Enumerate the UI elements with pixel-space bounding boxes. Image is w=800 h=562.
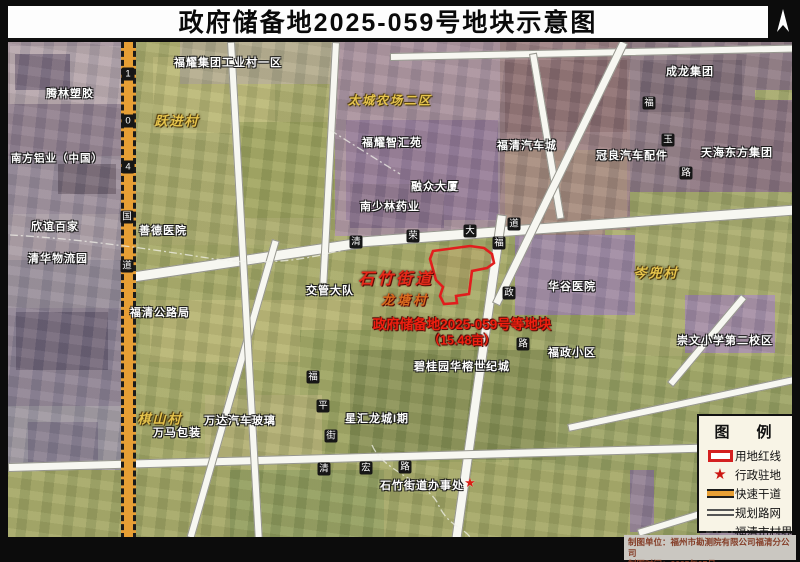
legend-swatch-red-line-icon [705,450,735,462]
legend-label: 行政驻地 [735,467,781,483]
place-label: 崇文小学第二校区 [677,332,773,348]
map-sheet: 政府储备地2025-059号地块示意图 [0,0,800,562]
road-chip: 政 [503,287,516,300]
road-chip: 玉 [662,134,675,147]
road-chip: 4 [122,161,135,174]
road-chip: 道 [121,260,134,273]
legend-swatch-expressway-icon [705,489,735,498]
place-label: 福清汽车城 [497,137,557,153]
road-chip: 路 [399,461,412,474]
road-chip: 0 [122,115,135,128]
road-chip: 福 [643,97,656,110]
place-label: 善德医院 [139,222,187,238]
legend-row: 规划路网 [705,503,792,522]
road-chip: 福 [307,371,320,384]
legend-swatch-planned-road-icon [705,509,735,516]
page-title: 政府储备地2025-059号地块示意图 [8,6,768,40]
road-chip: 福 [493,237,506,250]
place-label: 融众大厦 [411,178,459,194]
place-label: 欣谊百家 [31,218,79,234]
legend-row: 用地红线 [705,446,792,465]
legend-swatch-boundary-icon [705,531,735,533]
place-label: 碧桂园华榕世纪城 [414,358,510,374]
road-chip: 1 [122,68,135,81]
village-label: 棋山村 [137,409,182,428]
place-label: 华谷医院 [548,278,596,294]
north-arrow-icon [772,6,794,38]
legend-box: 图 例 用地红线 ★ 行政驻地 快速干道 规划路网 福清市村界 [697,414,792,533]
legend-row: ★ 行政驻地 [705,465,792,484]
place-label: 万达汽车玻璃 [204,412,276,428]
admin-star-icon: ★ [464,475,476,491]
place-label: 清华物流园 [28,250,88,266]
village-label: 跃进村 [154,111,199,130]
place-label: 福政小区 [548,344,596,360]
legend-swatch-star-icon: ★ [705,468,735,482]
place-label: 冠良汽车配件 [596,147,668,163]
road-chip: 路 [680,167,693,180]
place-label: 腾林塑胶 [46,85,94,101]
road-chip: 清 [350,236,363,249]
title-bar: 政府储备地2025-059号地块示意图 [8,6,768,40]
attribution-line1: 制图单位：福州市勘测院有限公司福清分公司 [628,537,796,559]
place-label: 南方铝业（中国） [11,151,103,166]
road-chip: 街 [325,430,338,443]
road-chip: 荣 [407,230,420,243]
village-label: 岑兜村 [633,263,678,282]
road-chip: 国 [121,211,134,224]
road-chip: 大 [464,225,477,238]
attribution-box: 制图单位：福州市勘测院有限公司福清分公司 制图时间：2025年07月 [624,535,796,560]
legend-row: 快速干道 [705,484,792,503]
road-chip: 清 [318,463,331,476]
street-label: 石竹街道 [358,265,434,289]
legend-label: 用地红线 [735,448,781,464]
village-red-label: 龙塘村 [381,290,429,309]
road-chip: 路 [517,338,530,351]
village-label: 太城农场二区 [348,92,432,109]
legend-label: 快速干道 [735,486,781,502]
place-label: 福清公路局 [130,304,190,320]
place-label: 福耀智汇苑 [362,134,422,150]
place-label: 交管大队 [306,282,354,298]
place-label: 福耀集团工业村一区 [174,54,282,70]
place-label: 天海东方集团 [701,144,773,160]
road-chip: 宏 [360,462,373,475]
legend-title: 图 例 [705,421,787,442]
place-label: 南少林药业 [360,198,420,214]
parcel-area-label: （15.48亩） [428,330,497,349]
road-chip: 道 [508,218,521,231]
place-label: 石竹街道办事处 [380,477,464,493]
road-chip: 平 [317,400,330,413]
place-label: 成龙集团 [666,63,714,79]
legend-label: 规划路网 [735,505,781,521]
place-label: 星汇龙城I期 [345,410,409,426]
map-area: 1 0 4 国 道 清 荣 大 道 福 政 路 福 玉 路 清 宏 路 福 平 … [8,42,792,537]
